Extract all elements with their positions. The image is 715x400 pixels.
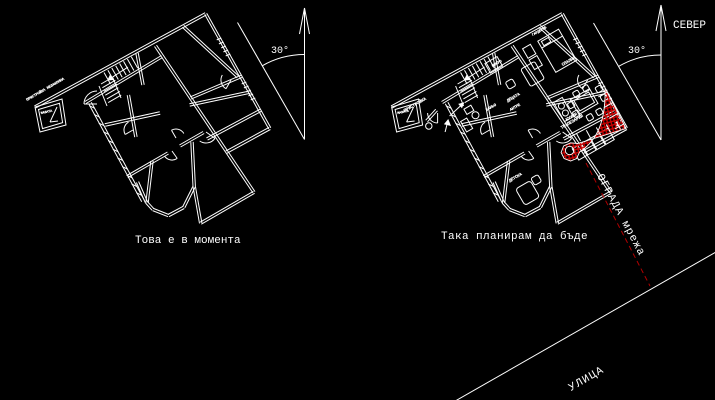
svg-text:СЕВЕР: СЕВЕР (673, 20, 706, 32)
svg-text:30°: 30° (628, 45, 646, 57)
svg-text:Това е в момента: Това е в момента (135, 235, 241, 247)
svg-text:Така планирам да бъде: Така планирам да бъде (441, 230, 588, 243)
svg-text:30°: 30° (271, 45, 289, 57)
